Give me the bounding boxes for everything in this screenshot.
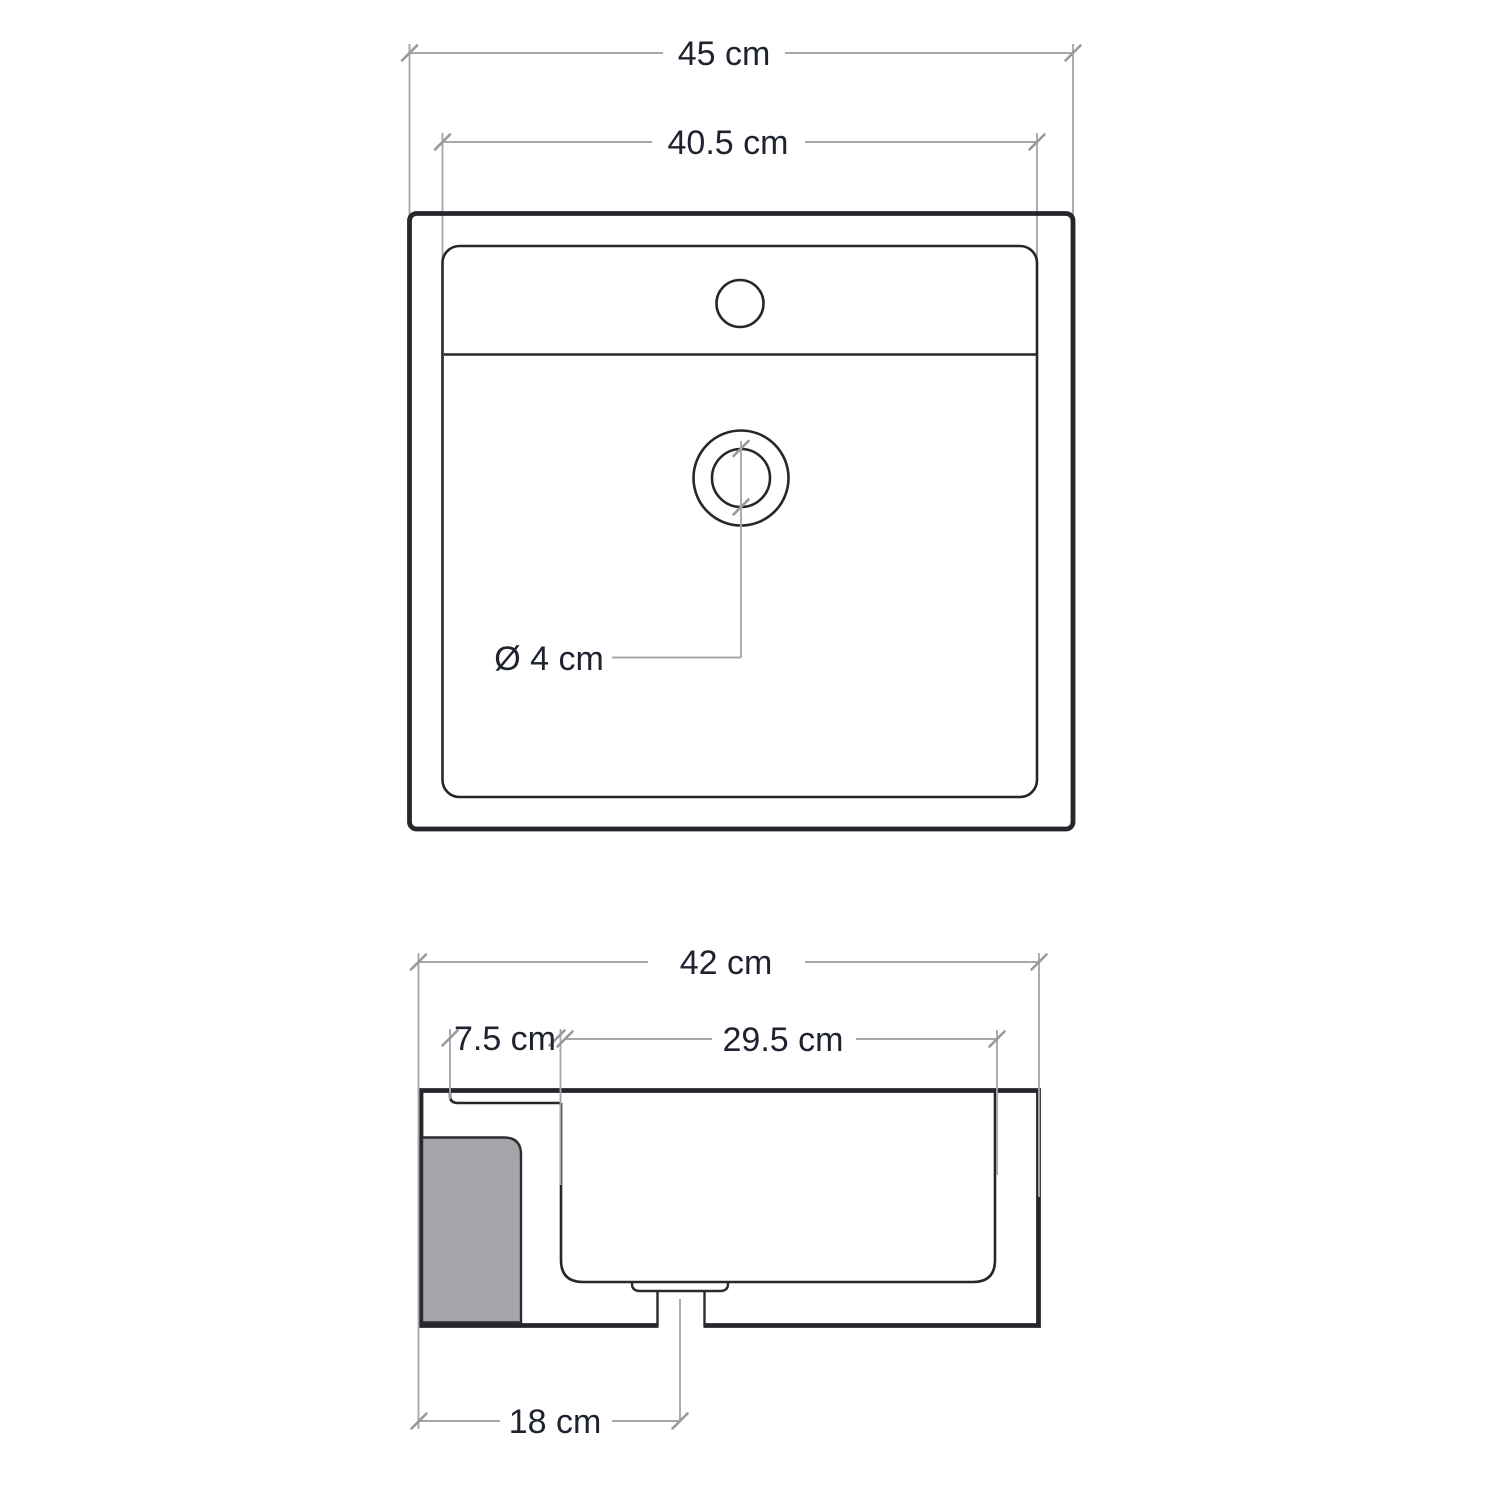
dimension-drain-diameter: Ø 4 cm [494, 441, 748, 678]
dimension-basin-depth: 29.5 cm [558, 1021, 1005, 1059]
dimension-deck-depth: 7.5 cm [443, 1020, 565, 1058]
drain-flange [632, 1282, 728, 1291]
dimension-label-drain-diameter: Ø 4 cm [494, 640, 604, 678]
dimension-overall-width: 45 cm [402, 35, 1081, 73]
dimension-overall-depth: 42 cm [411, 944, 1047, 982]
dimension-label-drain-offset: 18 cm [509, 1403, 602, 1441]
basin-inner-rim [443, 246, 1038, 797]
deck-step-edge [450, 1092, 561, 1103]
dimension-label-overall-depth: 42 cm [680, 944, 773, 982]
side-view: 42 cm 7.5 cm 29.5 cm 18 cm [411, 944, 1047, 1441]
dimension-label-inner-width: 40.5 cm [668, 124, 789, 162]
faucet-hole [717, 280, 764, 327]
dimension-label-overall-width: 45 cm [678, 35, 771, 73]
diagram-canvas: 45 cm 40.5 cm Ø 4 cm [0, 0, 1500, 1500]
basin-cavity [561, 1092, 995, 1282]
dimension-label-deck-depth: 7.5 cm [454, 1020, 556, 1058]
dimension-inner-width: 40.5 cm [435, 124, 1045, 162]
top-view: 45 cm 40.5 cm Ø 4 cm [402, 35, 1081, 829]
dimension-label-basin-depth: 29.5 cm [723, 1021, 844, 1059]
pedestal-block [422, 1138, 521, 1323]
washbasin-diagram: 45 cm 40.5 cm Ø 4 cm [0, 0, 1500, 1500]
